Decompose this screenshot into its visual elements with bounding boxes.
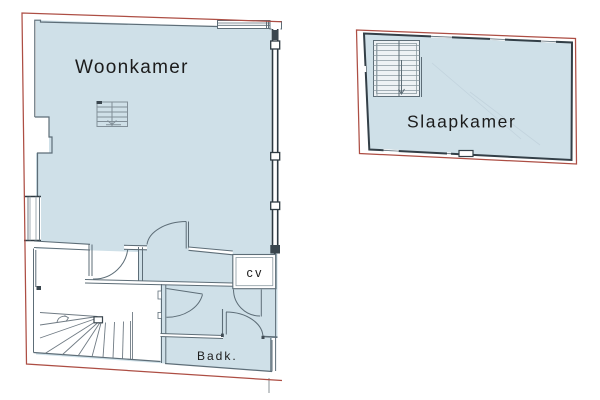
svg-text:Badk.: Badk.: [197, 349, 238, 363]
svg-text:Woonkamer: Woonkamer: [75, 57, 189, 78]
svg-text:Slaapkamer: Slaapkamer: [407, 112, 516, 132]
svg-text:cv: cv: [247, 266, 264, 280]
